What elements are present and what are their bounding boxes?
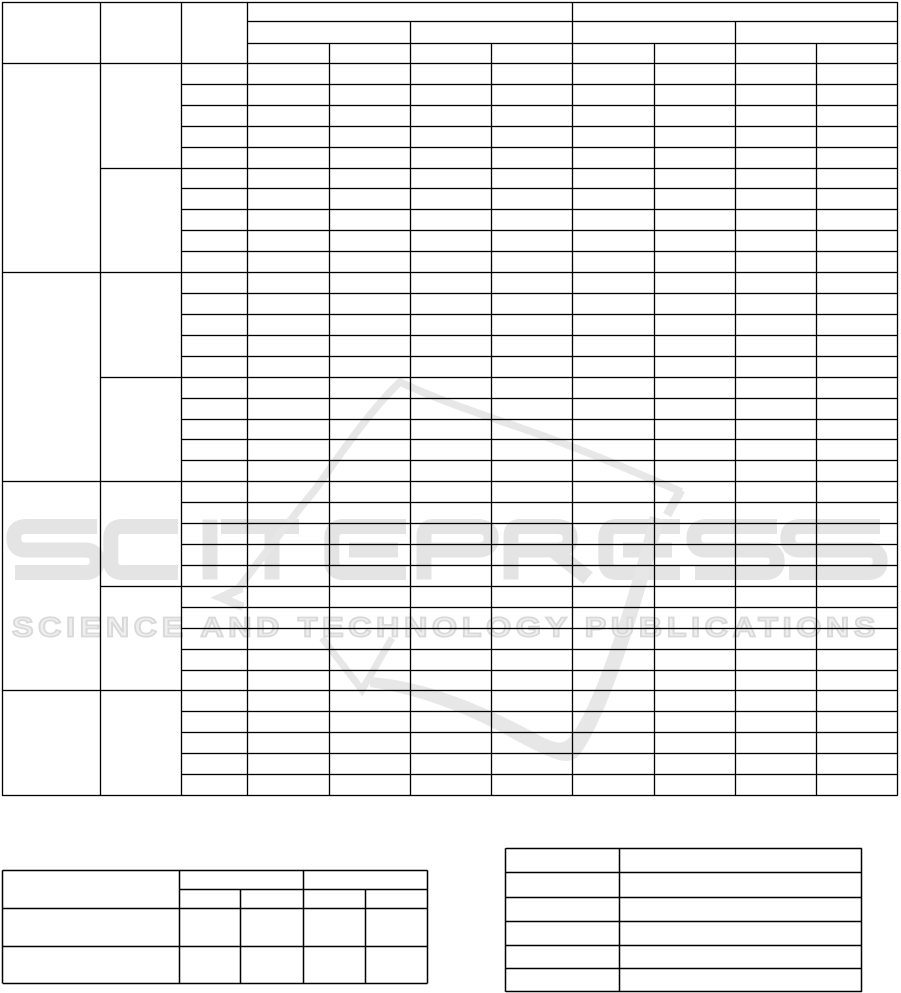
svg-text:SCIENCE AND TECHNOLOGY PUBLICA: SCIENCE AND TECHNOLOGY PUBLICATIONS	[12, 612, 880, 643]
